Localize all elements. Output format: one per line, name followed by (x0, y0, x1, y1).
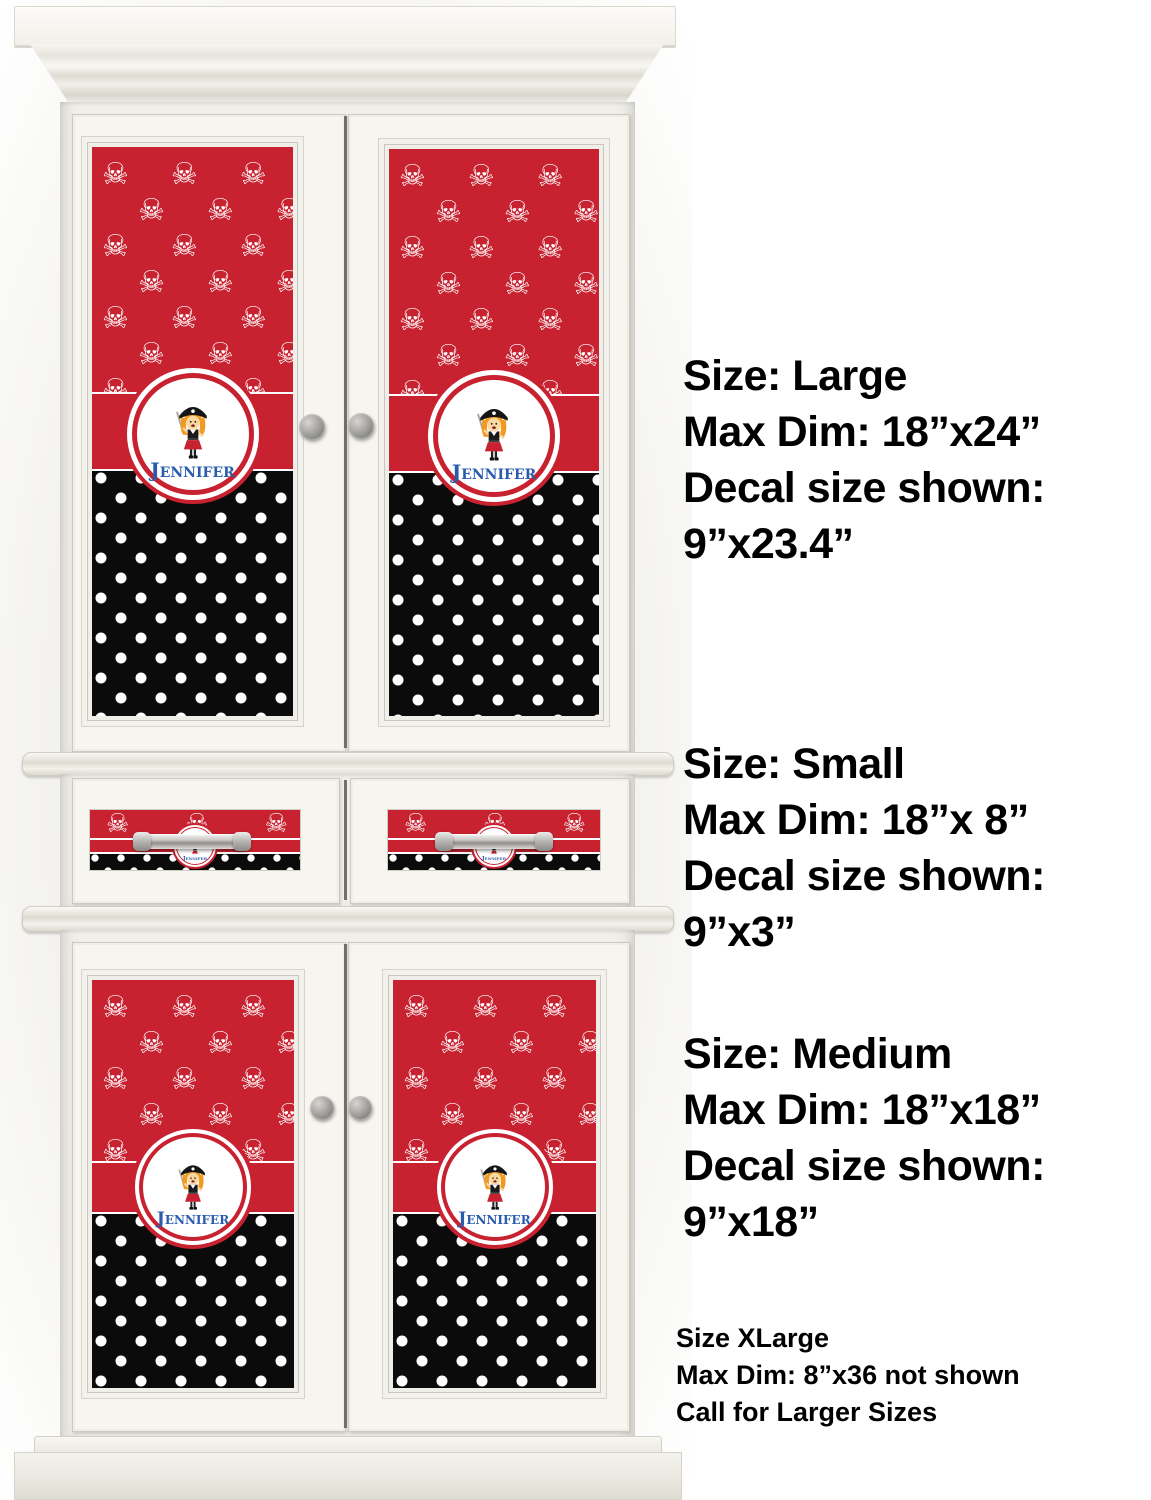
drawer-seam (344, 780, 347, 900)
size-xlarge-title: Size XLarge (676, 1320, 1020, 1357)
size-medium-title: Size: Medium (683, 1026, 1045, 1082)
pirate-girl-icon (476, 1161, 514, 1211)
pirate-girl-icon (174, 1161, 212, 1211)
decal-medium-left: Jennifer (88, 976, 298, 1392)
pirate-badge: Jennifer (433, 1125, 557, 1249)
pirate-girl-icon (171, 402, 215, 460)
door-knob (299, 414, 325, 440)
size-small-shown-value: 9”x3” (683, 904, 1045, 960)
polka-dot-pattern (92, 471, 293, 716)
size-large-shown-value: 9”x23.4” (683, 516, 1045, 572)
decal-name-text: Jennifer (183, 857, 207, 863)
decal-name-text: Jennifer (458, 1211, 530, 1228)
door-knob (348, 413, 374, 439)
size-xlarge-call-note: Call for Larger Sizes (676, 1394, 1020, 1431)
pirate-badge: Jennifer (123, 364, 263, 504)
decal-name-text: Jennifer (150, 460, 235, 480)
pirate-badge: Jennifer (131, 1125, 255, 1249)
size-xlarge-max-dim: Max Dim: 8”x36 not shown (676, 1357, 1020, 1394)
crown-molding (30, 44, 664, 102)
base-plinth (14, 1452, 682, 1500)
upper-door-seam (344, 116, 347, 748)
crown-top-board (14, 6, 676, 46)
size-large-title: Size: Large (683, 348, 1045, 404)
drawer-handle (137, 834, 247, 849)
size-medium-shown-value: 9”x18” (683, 1194, 1045, 1250)
decal-medium-right: Jennifer (389, 976, 600, 1392)
decal-name-text: Jennifer (157, 1211, 229, 1228)
drawer-handle (439, 834, 549, 849)
pirate-girl-icon (472, 404, 516, 462)
pirate-badge: Jennifer (424, 366, 564, 506)
skull-crossbones-pattern (389, 149, 599, 394)
size-large-shown-label: Decal size shown: (683, 460, 1045, 516)
size-small-shown-label: Decal size shown: (683, 848, 1045, 904)
size-large-max-dim: Max Dim: 18”x24” (683, 404, 1045, 460)
decal-large-right: Jennifer (385, 145, 603, 720)
decal-name-text: Jennifer (482, 857, 506, 863)
decal-large-left: Jennifer (88, 143, 297, 720)
molding-band (22, 752, 674, 776)
size-medium-shown-label: Decal size shown: (683, 1138, 1045, 1194)
size-small-max-dim: Max Dim: 18”x 8” (683, 792, 1045, 848)
polka-dot-pattern (389, 473, 599, 716)
size-info-small: Size: Small Max Dim: 18”x 8” Decal size … (683, 736, 1045, 960)
size-info-medium: Size: Medium Max Dim: 18”x18” Decal size… (683, 1026, 1045, 1250)
decal-name-text: Jennifer (452, 462, 537, 482)
size-medium-max-dim: Max Dim: 18”x18” (683, 1082, 1045, 1138)
size-small-title: Size: Small (683, 736, 1045, 792)
door-knob (310, 1096, 334, 1120)
door-knob (348, 1096, 372, 1120)
size-info-xlarge: Size XLarge Max Dim: 8”x36 not shown Cal… (676, 1320, 1020, 1431)
size-info-large: Size: Large Max Dim: 18”x24” Decal size … (683, 348, 1045, 572)
product-size-chart-image: Jennifer (0, 0, 1151, 1500)
lower-door-seam (344, 944, 347, 1428)
molding-band (22, 906, 674, 932)
skull-crossbones-pattern (92, 147, 293, 392)
